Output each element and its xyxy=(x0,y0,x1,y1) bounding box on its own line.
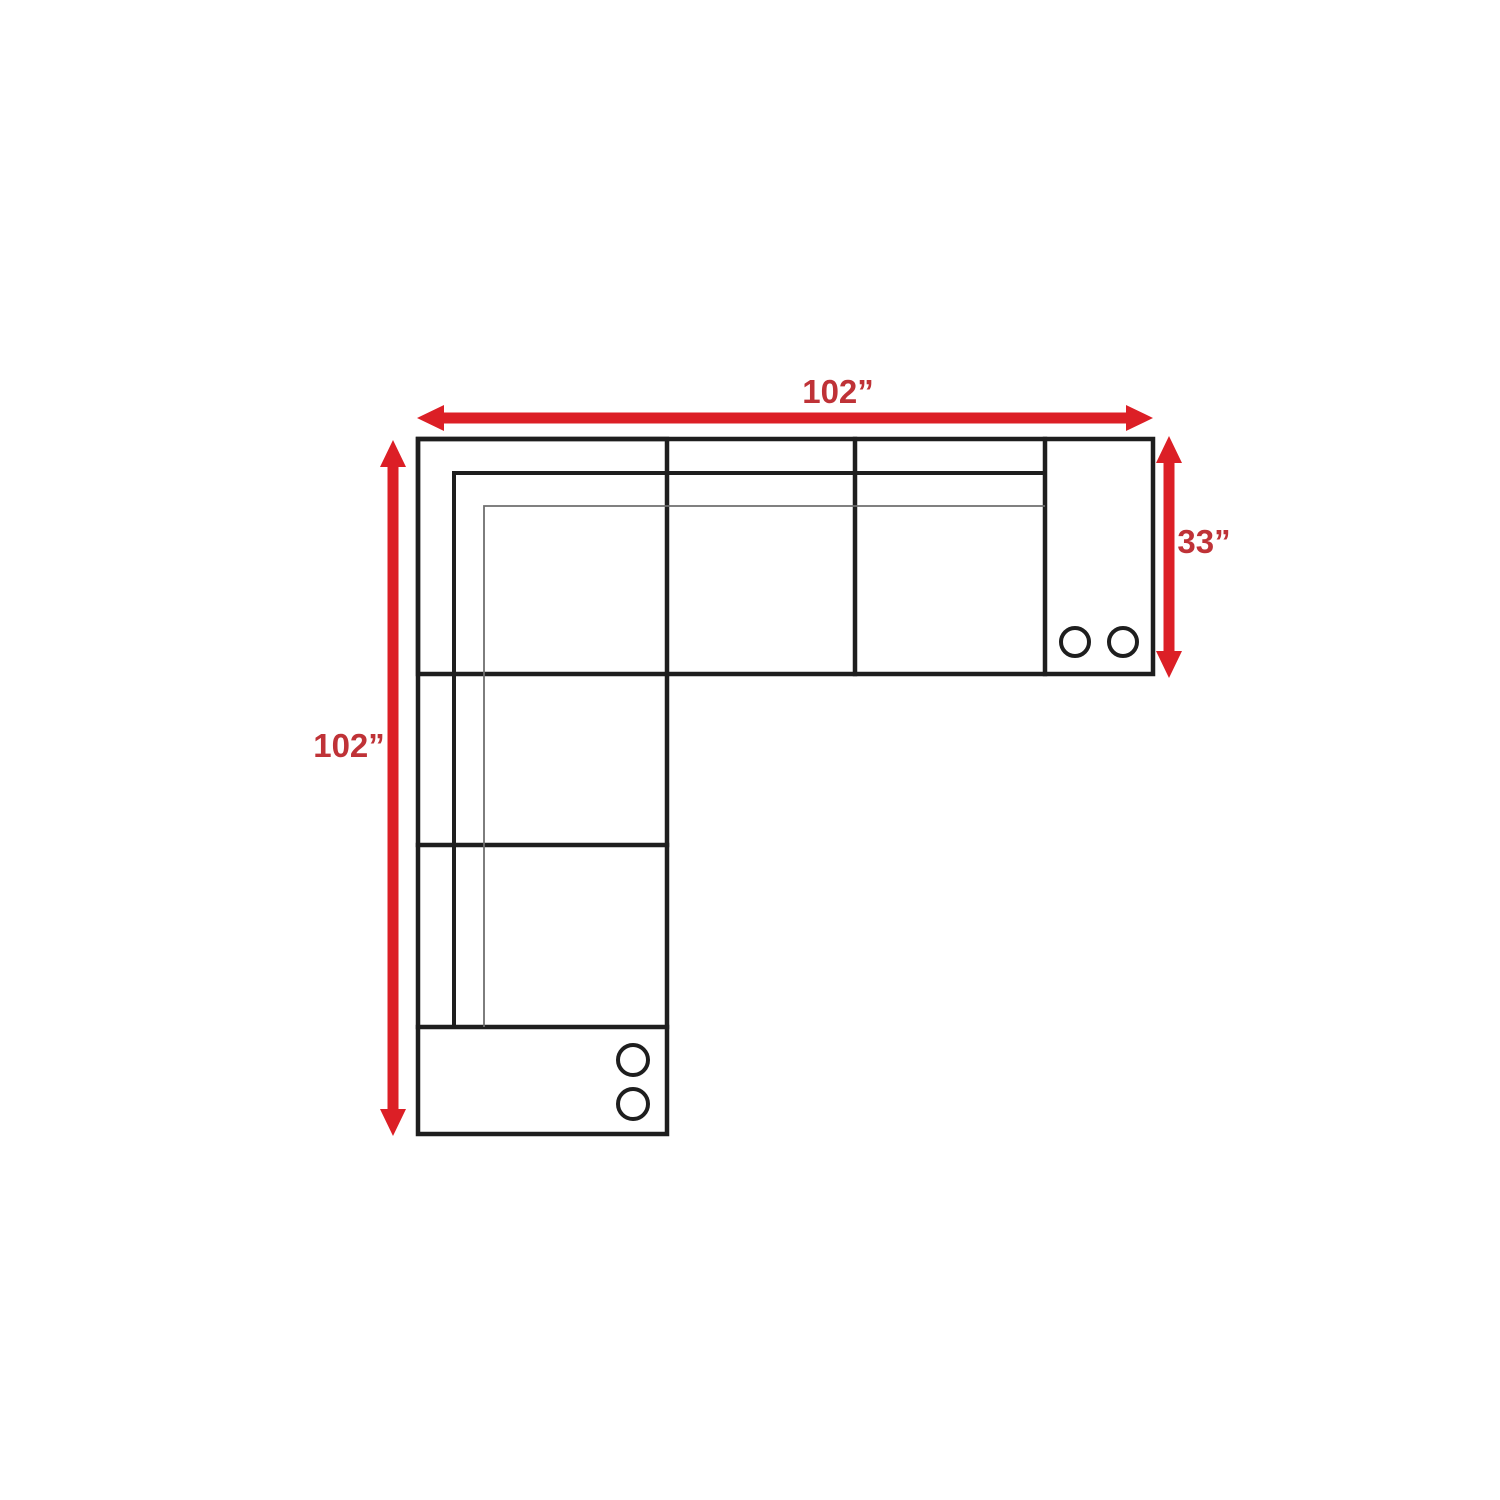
diagram-canvas: 102” 102” 33” xyxy=(0,0,1500,1500)
background xyxy=(0,0,1500,1500)
depth-dimension-label: 33” xyxy=(1177,523,1230,560)
width-dimension-label: 102” xyxy=(802,373,874,410)
length-dimension-label: 102” xyxy=(313,727,385,764)
sectional-sofa-dimension-diagram: 102” 102” 33” xyxy=(0,0,1500,1500)
